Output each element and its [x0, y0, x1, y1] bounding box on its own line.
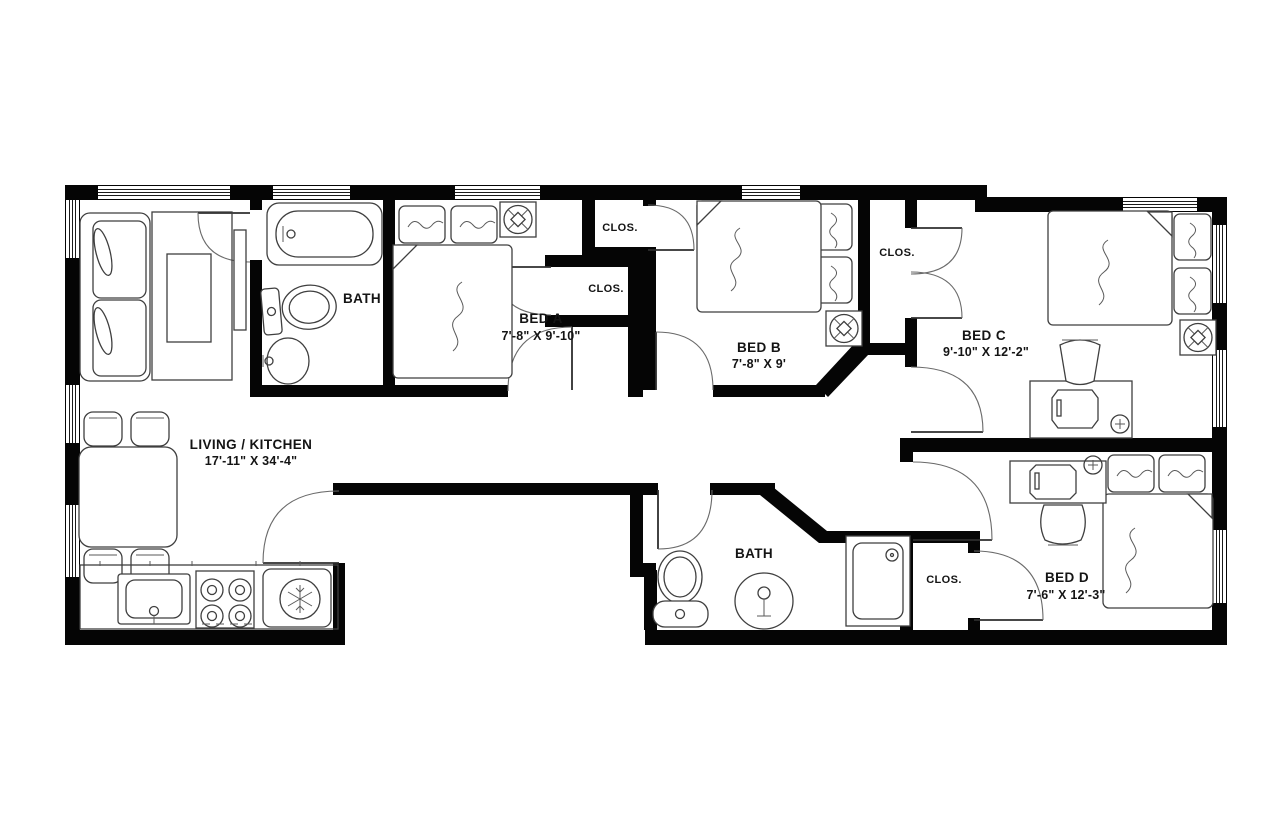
label-bed-a: BED A: [519, 311, 563, 326]
window: [1123, 198, 1197, 211]
doors: [198, 205, 1043, 620]
label-bath-upper: BATH: [343, 291, 381, 306]
label-closet-bed-b: CLOS.: [602, 222, 638, 234]
bed: [1048, 211, 1172, 325]
label-living-kitchen: LIVING / KITCHEN: [190, 437, 313, 452]
shower: [846, 536, 910, 626]
ceiling-fan-icon: [1180, 320, 1216, 355]
window: [66, 385, 79, 443]
dining-table: [79, 447, 177, 547]
bathtub: [267, 203, 382, 265]
pillow: [399, 206, 445, 243]
toilet: [653, 551, 708, 627]
kitchen-sink: [118, 574, 190, 624]
door-bath-lower: [658, 490, 712, 549]
pillow: [451, 206, 497, 243]
room-bath-lower: [653, 536, 910, 629]
label-bed-c: BED C: [962, 328, 1006, 343]
door-entry: [263, 491, 339, 563]
label-closet-bed-a: CLOS.: [588, 283, 624, 295]
pillow: [1174, 268, 1211, 314]
window: [98, 186, 230, 199]
door-closet-bed-c-upper: [911, 228, 962, 274]
window: [455, 186, 540, 199]
label-living-kitchen-dims: 17'-11" X 34'-4": [205, 454, 298, 468]
dining-chair: [84, 549, 122, 583]
desk: [1030, 381, 1132, 438]
stove: [196, 571, 254, 628]
label-bed-d-dims: 7'-6" X 12'-3": [1027, 588, 1106, 602]
label-bed-c-dims: 9'-10" X 12'-2": [943, 345, 1029, 359]
dining-chair: [84, 412, 122, 446]
door-closet-bed-d: [974, 551, 1043, 620]
desk-chair: [1041, 505, 1086, 545]
bed: [697, 201, 821, 312]
room-bed-b: [697, 201, 862, 346]
desk-chair: [1060, 340, 1100, 385]
floor-plan-drawing: BATH BED A 7'-8" X 9'-10" CLOS. CLOS. BE…: [0, 0, 1280, 828]
dining-chair: [131, 412, 169, 446]
window: [1213, 530, 1226, 603]
dining-set: [79, 412, 177, 583]
window: [1213, 350, 1226, 427]
door-bed-b: [656, 332, 713, 390]
pillow: [1159, 455, 1205, 492]
pillow: [1108, 455, 1154, 492]
bed: [1103, 494, 1213, 608]
label-bed-a-dims: 7'-8" X 9'-10": [502, 329, 581, 343]
ceiling-fan-icon: [500, 202, 536, 237]
label-closet-bed-c: CLOS.: [879, 247, 915, 259]
label-closet-bed-d: CLOS.: [926, 574, 962, 586]
pillow: [1174, 214, 1211, 260]
room-living-kitchen: [79, 212, 338, 629]
door-bed-d: [913, 462, 992, 540]
toilet: [260, 283, 338, 335]
door-bed-c: [911, 367, 983, 432]
bed: [393, 245, 512, 378]
ceiling-fan-icon: [826, 311, 862, 346]
coffee-table: [167, 254, 211, 342]
sofa: [80, 213, 150, 381]
window: [742, 186, 800, 199]
room-bed-d: [1010, 455, 1213, 608]
room-bed-c: [1030, 211, 1216, 438]
console: [234, 230, 246, 330]
wall-sink: [263, 338, 309, 384]
window: [66, 200, 79, 258]
refrigerator: [263, 569, 331, 627]
label-bed-d: BED D: [1045, 570, 1089, 585]
pedestal-sink: [735, 573, 793, 629]
desk: [1010, 456, 1106, 503]
label-bed-b: BED B: [737, 340, 781, 355]
label-bath-lower: BATH: [735, 546, 773, 561]
floor-plan-page: BATH BED A 7'-8" X 9'-10" CLOS. CLOS. BE…: [0, 0, 1280, 828]
door-closet-bed-b: [648, 205, 694, 250]
label-bed-b-dims: 7'-8" X 9': [732, 357, 786, 371]
room-bed-a: [393, 202, 536, 378]
window: [66, 505, 79, 577]
door-closet-bed-c-lower: [911, 272, 962, 318]
window: [1213, 225, 1226, 303]
window: [273, 186, 350, 199]
